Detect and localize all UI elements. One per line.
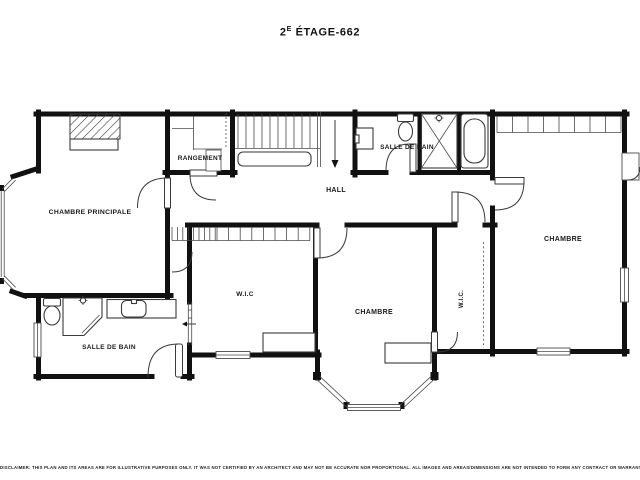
wic-center-closet-slats (172, 227, 310, 241)
window-bedroom-right-bottom (537, 348, 570, 355)
door-storage (190, 170, 217, 200)
balcony-door-right (622, 153, 640, 180)
door-master-bedroom (138, 178, 171, 208)
bathroom-top-fixtures (355, 114, 488, 169)
bedroom-right-closet-slats (497, 116, 621, 133)
walls (0, 112, 627, 409)
room-label-rangement: RANGEMENT (178, 155, 223, 162)
window-bottom-center (216, 352, 250, 359)
floor-plan-page: 2E ÉTAGE-662 (0, 0, 640, 480)
room-label-chambre-centre: CHAMBRE (355, 309, 393, 316)
windows (1, 153, 640, 411)
stair-railing (238, 152, 311, 166)
bathroom-bottom-fixtures (44, 296, 177, 336)
door-swings (138, 144, 525, 377)
corner-shower-icon (63, 296, 102, 336)
pocket-door-wic (182, 302, 196, 345)
sink-icon (355, 128, 373, 149)
master-shelf (70, 139, 118, 150)
door-bedroom-right (495, 178, 524, 211)
storage-closet-lines (172, 113, 226, 171)
bedroom-center-dresser (385, 343, 431, 363)
door-bedroom-center (314, 228, 347, 258)
stairs-down-arrow-icon (332, 120, 339, 168)
bathtub-icon (461, 114, 488, 168)
slide-arrow-icon (182, 322, 196, 327)
floor-plan-drawing: CHAMBRE PRINCIPALE RANGEMENT SALLE DE BA… (0, 0, 640, 480)
door-bathroom-bottom (148, 344, 183, 377)
room-label-wic-droit: W.I.C. (459, 290, 465, 308)
room-label-wic-centre: W.I.C (236, 291, 253, 298)
room-label-chambre-droite: CHAMBRE (544, 236, 582, 243)
hatched-area (70, 114, 120, 150)
vanity-sink-icon (107, 300, 176, 319)
staircase (235, 112, 339, 168)
room-label-chambre-principale: CHAMBRE PRINCIPALE (49, 209, 132, 216)
toilet-icon (398, 114, 414, 141)
room-label-salle-de-bain-haut: SALLE DE BAIN (380, 144, 434, 151)
window-right-wall (621, 268, 629, 302)
bay-window-master (1, 178, 15, 290)
room-label-hall: HALL (326, 187, 346, 194)
bay-window (317, 376, 434, 410)
window-left-bathroom (34, 323, 41, 357)
door-wic-right-top (452, 192, 485, 222)
room-label-salle-de-bain-bas: SALLE DE BAIN (82, 344, 136, 351)
shower-icon (422, 114, 458, 169)
wic-bench (263, 333, 315, 352)
disclaimer-text: DISCLAIMER: THIS PLAN AND ITS AREAS ARE … (0, 465, 640, 470)
toilet-icon (44, 299, 61, 326)
